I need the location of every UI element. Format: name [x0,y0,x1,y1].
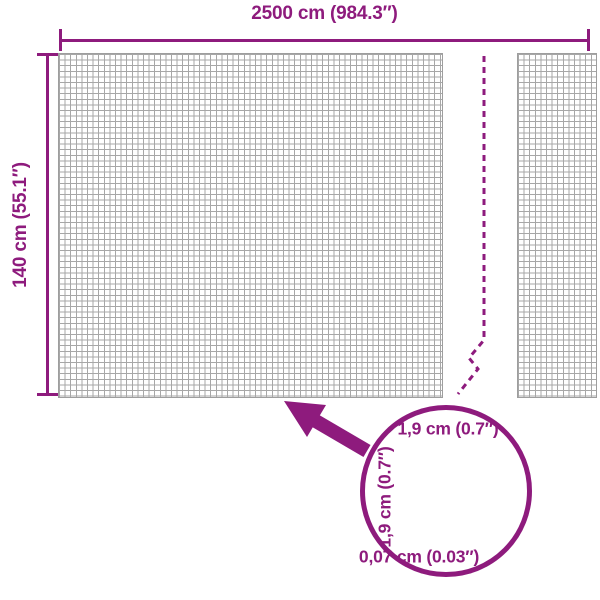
height-dimension-tick-bottom [37,393,58,396]
mesh-panel-main [58,53,443,398]
width-dimension-label: 2500 cm (984.3″) [60,3,589,25]
mesh-panel-right [517,53,597,398]
height-dimension-line [46,54,49,396]
wire-thickness-label: 0,07 cm (0.03″) [359,547,479,568]
height-dimension-tick-top [37,53,58,56]
mesh-opening-width-label: 1,9 cm (0.7″) [397,419,498,440]
product-dimension-diagram: 2500 cm (984.3″) 140 cm (55.1″) [0,0,600,600]
height-dimension-label: 140 cm (55.1″) [10,162,32,288]
width-dimension-line [60,39,589,42]
width-dimension-tick-right [587,29,590,51]
width-dimension-tick-left [59,29,62,51]
mesh-opening-height-label: 1,9 cm (0.7″) [375,446,396,547]
